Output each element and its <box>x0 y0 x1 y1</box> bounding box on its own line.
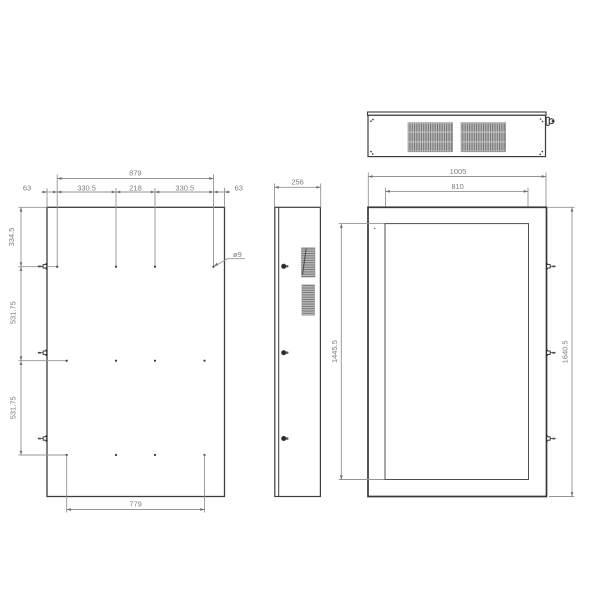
svg-text:ø9: ø9 <box>233 250 242 259</box>
svg-text:879: 879 <box>129 169 142 178</box>
svg-text:63: 63 <box>23 184 31 193</box>
svg-text:779: 779 <box>129 500 142 509</box>
svg-text:1445.5: 1445.5 <box>330 340 339 363</box>
svg-text:256: 256 <box>291 177 304 186</box>
svg-text:810: 810 <box>451 182 464 191</box>
svg-text:63: 63 <box>235 184 243 193</box>
svg-text:1005: 1005 <box>450 167 467 176</box>
svg-text:334.5: 334.5 <box>7 228 16 247</box>
svg-text:330.5: 330.5 <box>175 184 194 193</box>
svg-text:531.75: 531.75 <box>9 301 18 324</box>
svg-text:218: 218 <box>129 184 142 193</box>
svg-text:1640.5: 1640.5 <box>561 340 570 363</box>
svg-text:330.5: 330.5 <box>77 184 96 193</box>
svg-text:531.75: 531.75 <box>9 396 18 419</box>
